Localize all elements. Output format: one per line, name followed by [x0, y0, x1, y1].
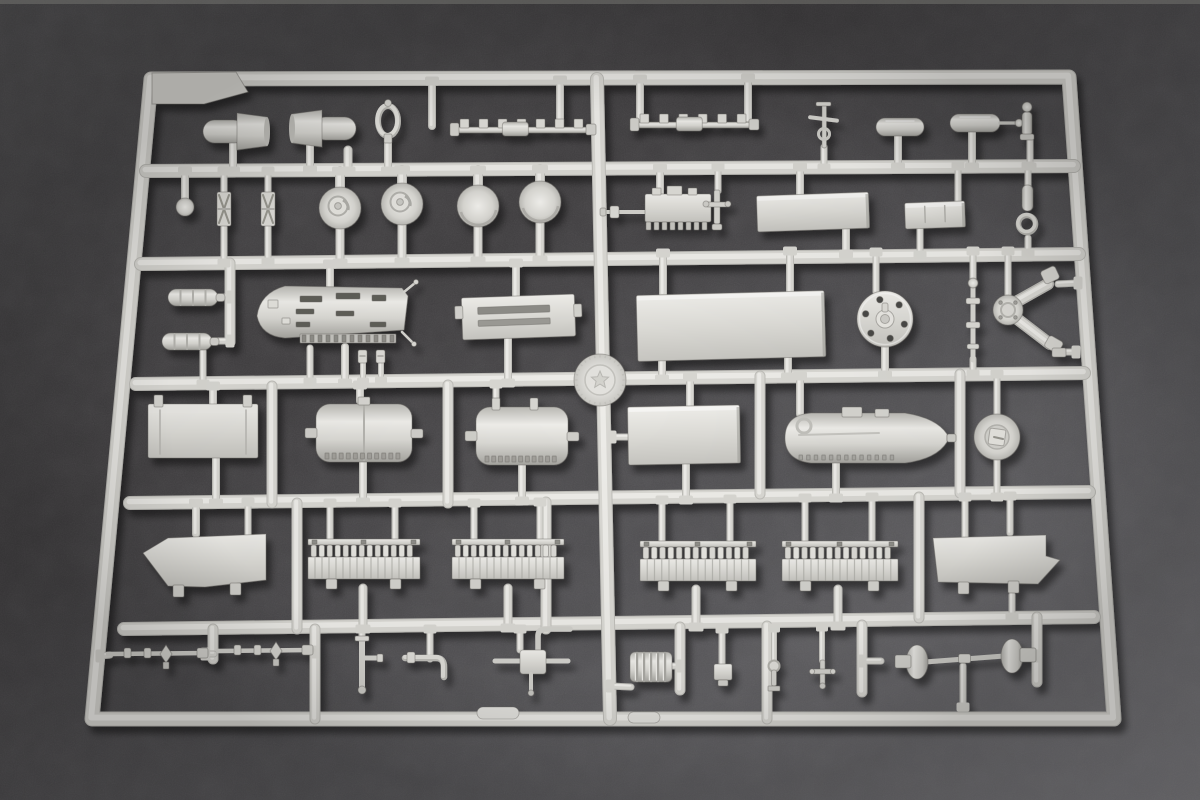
plate-face [905, 201, 966, 229]
part-long-box [628, 405, 741, 465]
model-kit-sprue-photo [0, 0, 1200, 800]
part-pontoon-hull [257, 280, 419, 347]
part-deck-plate-xl [636, 291, 826, 362]
sprue-photo-svg [0, 0, 1200, 800]
plate-face [636, 291, 826, 362]
ejector-tab-2 [628, 712, 660, 723]
part-dome-drum-b [519, 181, 561, 223]
ejector-tab-1 [477, 707, 519, 719]
part-mini-clamp-a [358, 350, 367, 363]
part-bolt-flange-disc [857, 291, 913, 347]
part-turnbuckle-b [261, 192, 275, 226]
part-flat-plate-small [905, 201, 966, 229]
part-ball-knob [176, 198, 194, 216]
brand-logo-medallion [574, 354, 626, 406]
part-toothed-rail-b [630, 114, 759, 131]
part-flat-plate-large [756, 192, 869, 232]
part-stowage-box [148, 395, 258, 458]
part-muffler-a [305, 397, 423, 462]
plate-face [756, 192, 869, 232]
part-winch-drum-b [381, 183, 423, 225]
part-wheel-cap [974, 414, 1020, 460]
part-mini-clamp-b [376, 350, 385, 363]
slotbox-face [454, 294, 582, 340]
part-knob-post [1020, 102, 1034, 140]
part-bellows-cylinder [630, 652, 672, 682]
plate-face [628, 405, 741, 465]
part-dome-drum-a [457, 185, 499, 227]
part-slotted-box [454, 294, 582, 340]
part-turnbuckle-a [217, 192, 231, 226]
backdrop-edge-strip [0, 0, 1200, 4]
sprue-frame [91, 72, 1114, 723]
part-small-tank-a [876, 118, 924, 136]
part-winch-drum-a [319, 187, 361, 229]
